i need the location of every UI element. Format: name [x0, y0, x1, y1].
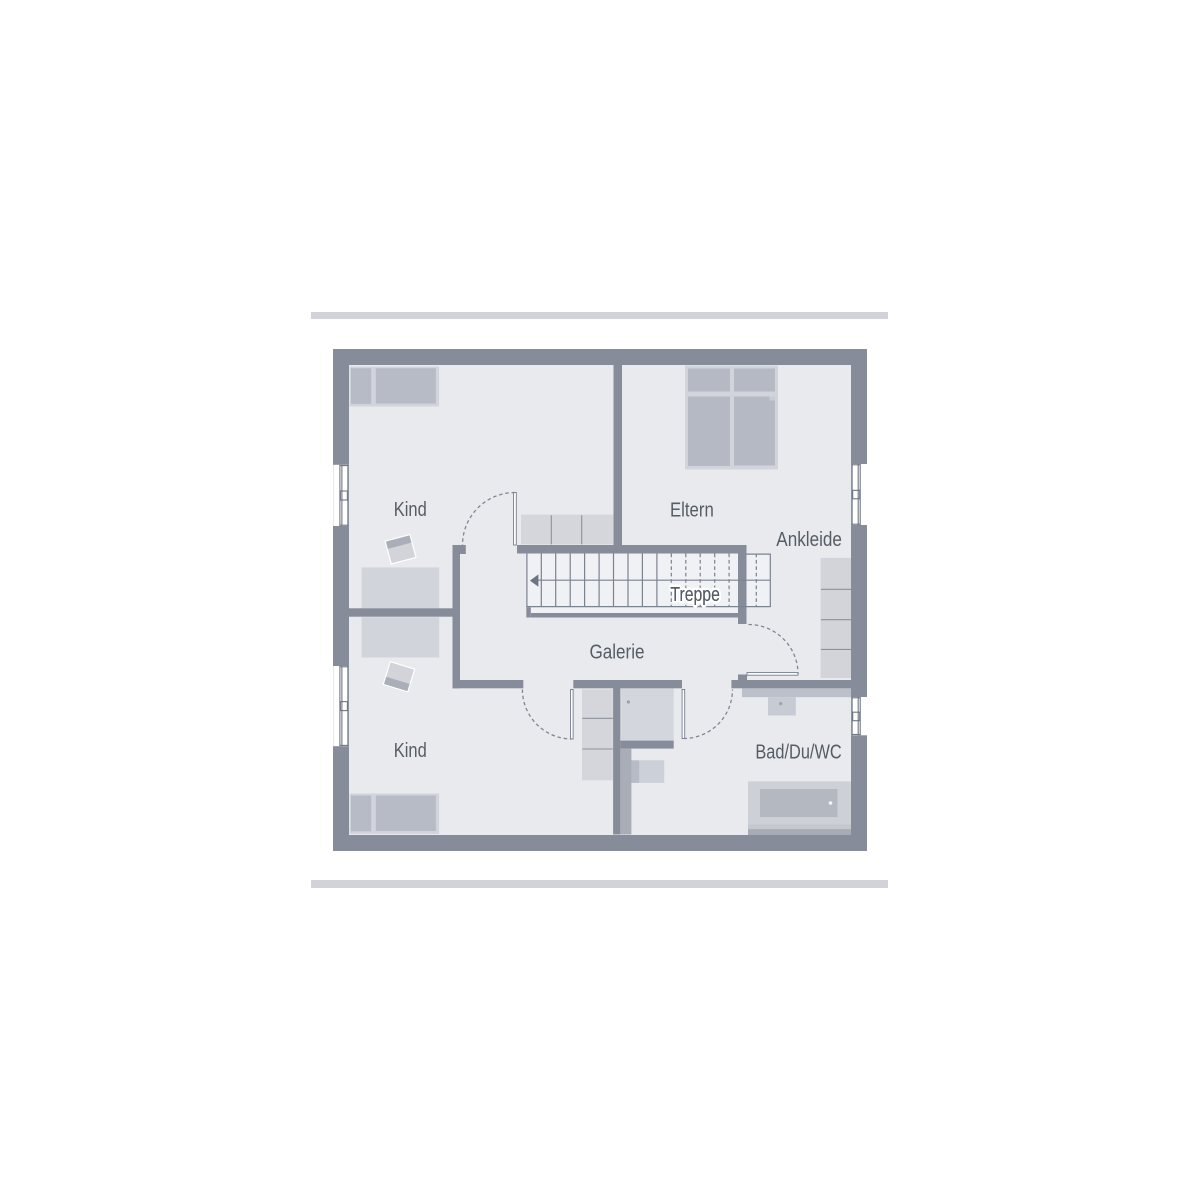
svg-text:Ankleide: Ankleide — [776, 528, 842, 551]
svg-text:Kind: Kind — [394, 739, 427, 762]
svg-text:Kind: Kind — [394, 498, 427, 521]
svg-text:Bad/Du/WC: Bad/Du/WC — [755, 740, 841, 763]
svg-text:Treppe: Treppe — [670, 583, 720, 606]
svg-text:Eltern: Eltern — [670, 499, 714, 522]
svg-text:Galerie: Galerie — [590, 641, 645, 664]
